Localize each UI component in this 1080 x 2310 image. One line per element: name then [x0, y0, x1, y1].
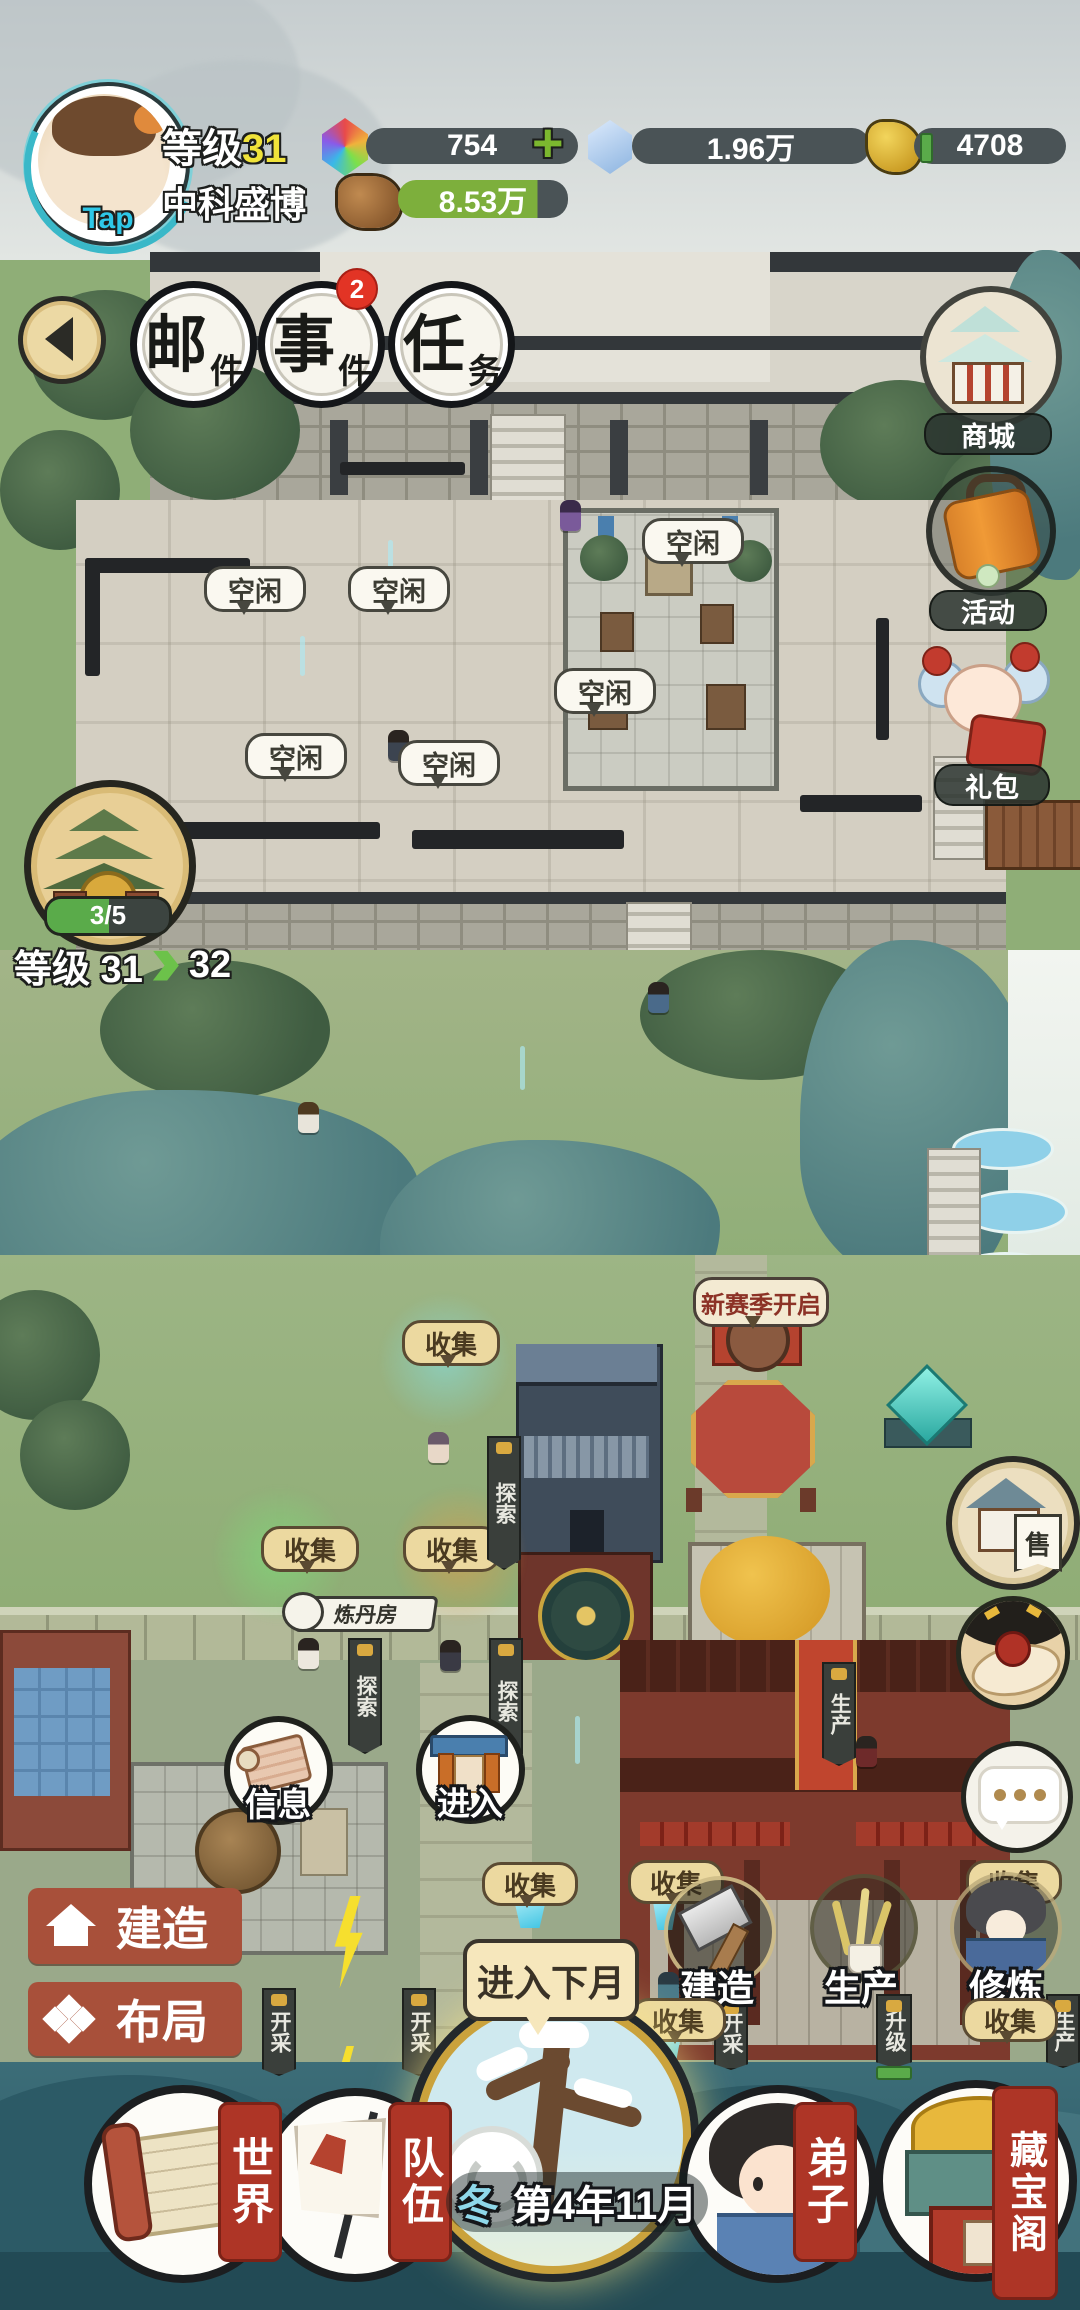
- lantern-tassel-icon: [976, 564, 1000, 588]
- npc-character[interactable]: [856, 1736, 877, 1767]
- gold-value: 4708: [957, 129, 1024, 163]
- add-gems-button[interactable]: +: [532, 112, 564, 174]
- next-month-button[interactable]: [415, 1998, 691, 2274]
- shop-label: 商城: [924, 413, 1052, 455]
- enter-button[interactable]: 进入: [416, 1715, 525, 1824]
- mail-button[interactable]: 邮件: [130, 281, 257, 408]
- upgrade-ribbon-text: 升级: [879, 2010, 909, 2052]
- collect-bubble[interactable]: 收集: [403, 1526, 501, 1572]
- npc-character[interactable]: [428, 1432, 449, 1463]
- treasure-door-icon: [963, 2220, 995, 2266]
- sect-progress-text: 3/5: [47, 900, 169, 931]
- gift-button[interactable]: [910, 634, 1050, 768]
- mine-ribbon[interactable]: 开采: [402, 1988, 436, 2076]
- pavilion-tree: [580, 535, 628, 581]
- upgrade-progress-bar: [876, 2066, 912, 2080]
- plaza-wall: [876, 618, 889, 740]
- gold-amount-pill: 4708: [914, 128, 1066, 164]
- house-icon: [44, 1904, 98, 1948]
- mail-label-small: 件: [210, 344, 244, 393]
- pellet-hand-button[interactable]: [956, 1596, 1070, 1710]
- activity-label: 活动: [929, 590, 1047, 631]
- date-label: 第4年11月: [513, 2173, 698, 2231]
- mine-ribbon-icon: [411, 1994, 427, 2006]
- ginkgo-tree: [700, 1536, 830, 1646]
- task-button[interactable]: 任务: [388, 281, 515, 408]
- npc-character[interactable]: [560, 500, 581, 531]
- mail-label-big: 邮: [145, 294, 207, 384]
- info-label: 信息: [222, 1778, 334, 1826]
- sell-house-roof-icon: [966, 1478, 1046, 1508]
- level-label: 等级: [162, 127, 242, 171]
- chair: [600, 612, 634, 652]
- back-arrow-icon: [45, 317, 73, 361]
- mine-ribbon-text: 开采: [404, 2011, 434, 2053]
- layout-menu-button[interactable]: 布局: [28, 1982, 242, 2056]
- wall-band: [76, 892, 1006, 904]
- activity-button[interactable]: [926, 466, 1056, 596]
- idle-bubble[interactable]: 空闲: [398, 740, 500, 786]
- arena-post: [800, 1488, 816, 1512]
- produce-ribbon[interactable]: 生产: [822, 1662, 856, 1766]
- event-badge: 2: [336, 268, 378, 310]
- pill-ball-icon: [995, 1631, 1031, 1667]
- mine-ribbon-text: 开采: [264, 2011, 294, 2053]
- explore-ribbon-text: 探索: [489, 1482, 519, 1524]
- season-label: 冬: [457, 2172, 499, 2233]
- idle-bubble[interactable]: 空闲: [642, 518, 744, 564]
- mine-ribbon-icon: [271, 1994, 287, 2006]
- sell-tag-icon: 售: [1014, 1514, 1062, 1572]
- cliff-stairs: [927, 1148, 981, 1270]
- nav-treasure-tag: 藏宝阁: [992, 2086, 1058, 2300]
- shop-button[interactable]: [920, 286, 1062, 428]
- crystal-amount-pill: 1.96万: [632, 128, 870, 164]
- training-hall-roof: [516, 1344, 657, 1386]
- wall-column: [470, 420, 488, 495]
- chat-bubble-tail: [992, 1814, 1012, 1840]
- collect-bubble[interactable]: 收集: [482, 1862, 578, 1906]
- chat-bubble-icon: [978, 1766, 1062, 1824]
- level-value: 31: [242, 127, 287, 171]
- chat-button[interactable]: [961, 1741, 1073, 1853]
- sell-building-button[interactable]: 售: [946, 1456, 1080, 1590]
- idle-bubble[interactable]: 空闲: [204, 566, 306, 612]
- rain-streak: [300, 636, 305, 676]
- explore-ribbon-icon: [357, 1644, 373, 1656]
- build-menu-button[interactable]: 建造: [28, 1888, 242, 1964]
- sect-level-row: 等级 31 32: [14, 938, 231, 993]
- shop-body-icon: [952, 362, 1024, 404]
- idle-bubble[interactable]: 空闲: [348, 566, 450, 612]
- sect-level-current: 等级 31: [14, 938, 143, 993]
- info-button[interactable]: 信息: [224, 1716, 333, 1825]
- shop-roof2-icon: [938, 334, 1032, 362]
- gift-girl-bun-left: [922, 646, 952, 676]
- player-name: 中科盛博: [162, 176, 306, 228]
- plaza-wall: [340, 462, 465, 475]
- gift-label: 礼包: [934, 764, 1050, 806]
- sect-roof2-icon: [55, 835, 153, 859]
- enter-label: 进入: [414, 1777, 526, 1825]
- wall-column: [750, 420, 768, 495]
- explore-ribbon-icon: [496, 1442, 512, 1454]
- tree: [20, 1400, 130, 1510]
- gold-progress-sliver: [920, 133, 933, 163]
- collect-bubble[interactable]: 收集: [962, 1998, 1058, 2042]
- pool-water: [14, 1668, 110, 1796]
- cliff-mountain: [800, 940, 1030, 1290]
- next-month-text: 进入下月: [477, 1953, 625, 2007]
- rain-streak: [575, 1716, 580, 1764]
- layout-menu-label: 布局: [116, 1986, 208, 2052]
- training-hall-balcony: [524, 1436, 649, 1478]
- player-level: 等级31: [162, 116, 287, 174]
- idle-bubble[interactable]: 空闲: [245, 733, 347, 779]
- layout-grid-icon: [44, 1996, 98, 2042]
- wood-value: 8.53万: [439, 177, 527, 221]
- training-hall-door: [570, 1510, 604, 1554]
- produce-ribbon-text: 生产: [824, 1693, 854, 1735]
- sect-level-next: 32: [189, 944, 231, 987]
- nav-world-tag: 世界: [218, 2102, 282, 2262]
- explore-ribbon-icon: [498, 1644, 514, 1656]
- plaza-wall: [85, 558, 100, 676]
- bridge: [985, 800, 1080, 870]
- terrace-inner: [320, 252, 770, 382]
- sect-progress-pill: 3/5: [44, 896, 172, 936]
- npc-character[interactable]: [298, 1638, 319, 1669]
- action-produce-label: 生产: [796, 1958, 926, 2012]
- chair: [700, 604, 734, 644]
- idle-bubble[interactable]: 空闲: [554, 668, 656, 714]
- plaza-wall: [800, 795, 922, 812]
- sell-tag-text: 售: [1025, 1525, 1051, 1562]
- npc-character[interactable]: [648, 982, 669, 1013]
- nav-team-tag: 队伍: [388, 2102, 452, 2262]
- wood-amount-pill: 8.53万: [398, 180, 568, 218]
- collect-bubble[interactable]: 收集: [261, 1526, 359, 1572]
- date-display: 冬 第4年11月: [446, 2172, 708, 2232]
- build-menu-label: 建造: [116, 1893, 208, 1959]
- wall-column: [330, 420, 348, 495]
- event-label-small: 件: [338, 344, 372, 393]
- disciple-eye-icon: [753, 2177, 763, 2191]
- season-banner-bubble[interactable]: 新赛季开启: [693, 1277, 829, 1327]
- scroll-roll-icon: [236, 1748, 260, 1772]
- nav-disciple-tag: 弟子: [793, 2102, 857, 2262]
- npc-character[interactable]: [440, 1640, 461, 1671]
- event-label-big: 事: [273, 294, 335, 384]
- explore-ribbon[interactable]: 探索: [348, 1638, 382, 1754]
- shop-roof-icon: [950, 306, 1020, 332]
- chevron-right-icon: [153, 951, 179, 981]
- sect-roof1-icon: [69, 809, 139, 831]
- cloud-icon: [282, 1592, 324, 1632]
- wall-column: [610, 420, 628, 495]
- task-label-small: 务: [468, 344, 502, 393]
- arena-post: [686, 1488, 702, 1512]
- gem-value: 754: [447, 129, 497, 163]
- game-screen: Tap 等级31 中科盛博 754 + 1.96万 4708 8.53万 邮件 …: [0, 0, 1080, 2310]
- plaza-wall: [412, 830, 624, 849]
- rain-streak: [520, 1046, 525, 1090]
- mine-ribbon[interactable]: 开采: [262, 1988, 296, 2076]
- chair: [706, 684, 746, 730]
- wood-icon: [338, 176, 400, 228]
- hall-balustrade: [640, 1822, 790, 1846]
- next-month-bubble-tail: [524, 2013, 552, 2049]
- explore-ribbon-text: 探索: [350, 1675, 380, 1717]
- next-month-bubble[interactable]: 进入下月: [463, 1939, 639, 2021]
- task-label-big: 任: [403, 294, 465, 384]
- npc-character[interactable]: [298, 1102, 319, 1133]
- back-button[interactable]: [18, 296, 106, 384]
- collect-bubble[interactable]: 收集: [402, 1320, 500, 1366]
- gift-girl-bun-right: [1010, 642, 1040, 672]
- explore-ribbon-text: 探索: [491, 1680, 521, 1722]
- produce-ribbon-icon: [831, 1668, 847, 1680]
- explore-ribbon[interactable]: 探索: [487, 1436, 521, 1570]
- alchemy-room-text: 炼丹房: [332, 1599, 399, 1629]
- stairs: [490, 414, 566, 510]
- crystal-value: 1.96万: [707, 124, 795, 168]
